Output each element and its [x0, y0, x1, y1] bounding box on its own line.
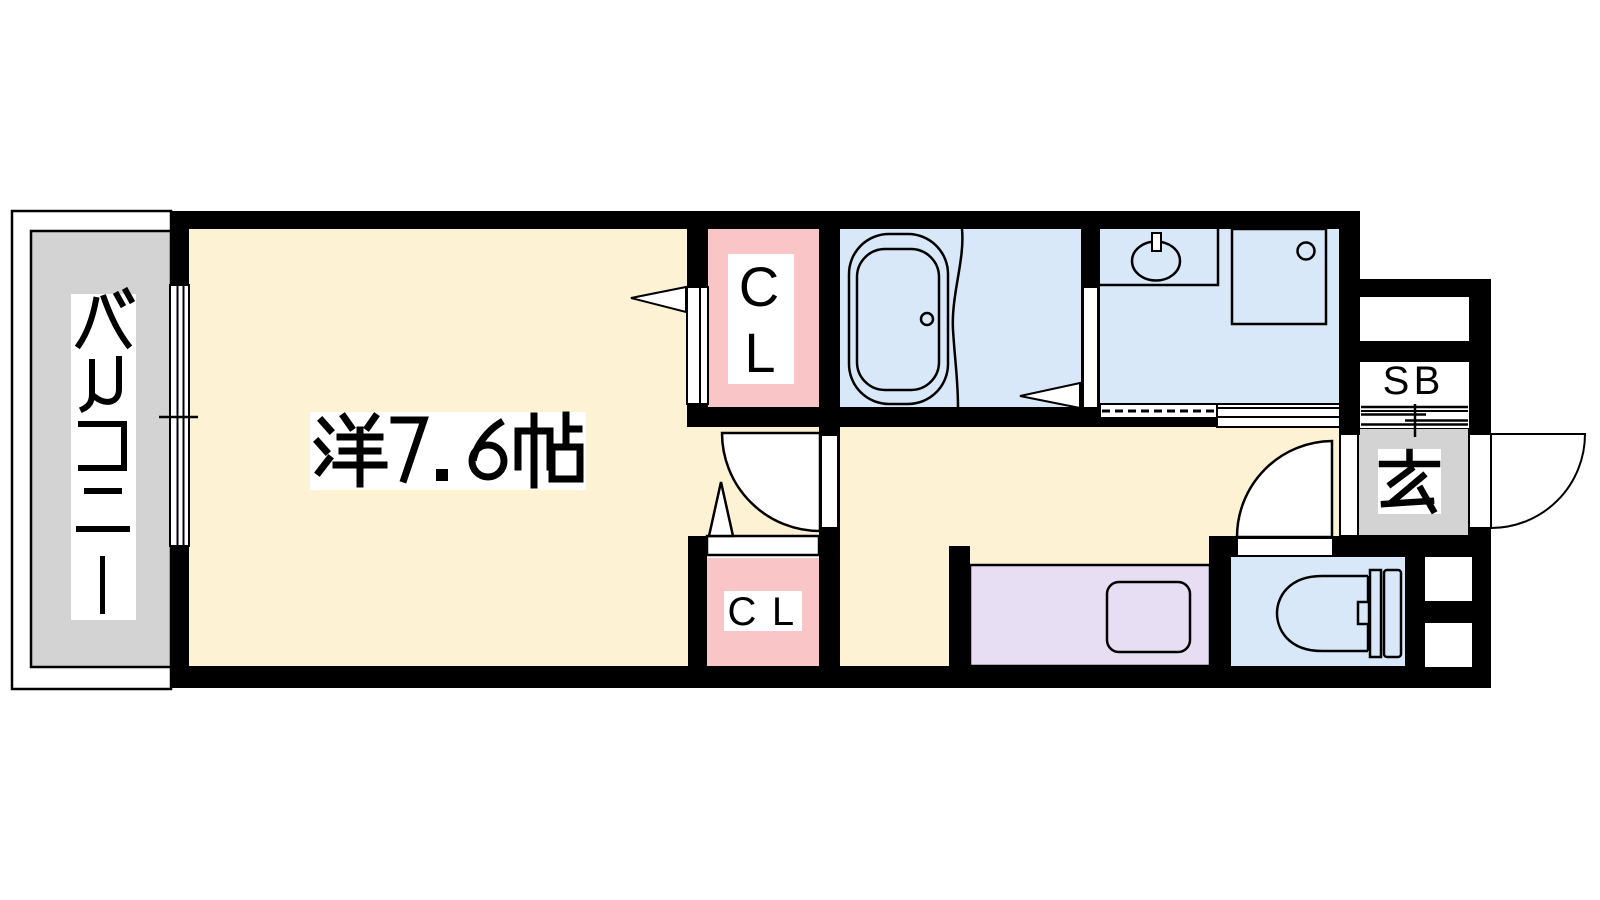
svg-text:L: L [744, 321, 775, 384]
svg-text:B: B [1414, 359, 1441, 403]
svg-text:S: S [1383, 359, 1410, 403]
svg-text:L: L [772, 590, 794, 634]
svg-text:C: C [728, 590, 757, 634]
svg-text:C: C [739, 255, 779, 318]
